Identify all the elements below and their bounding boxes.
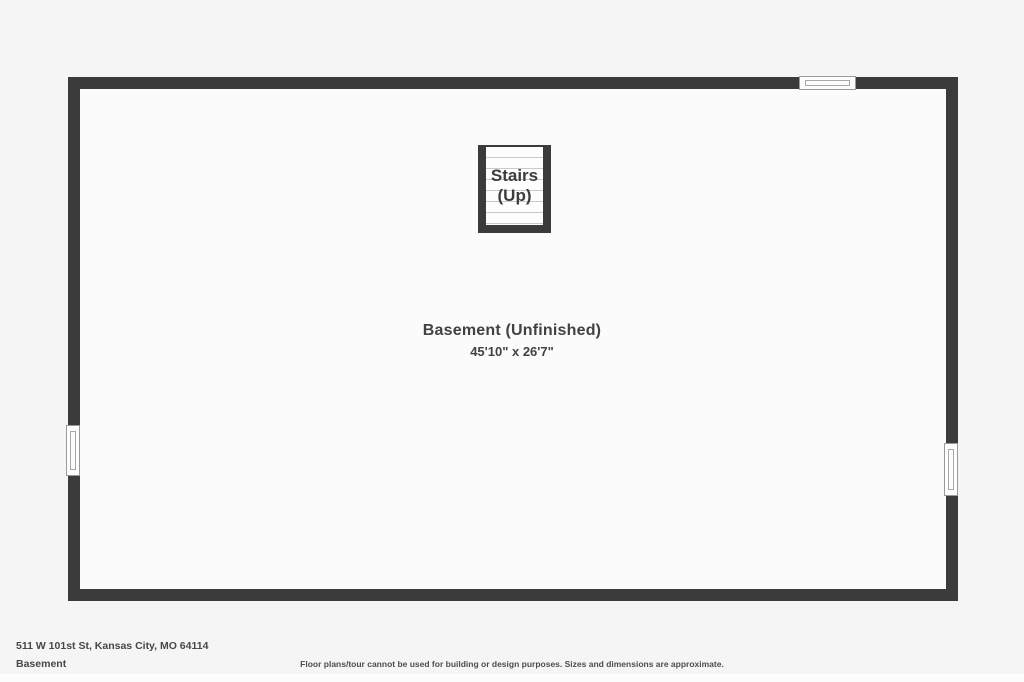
property-address: 511 W 101st St, Kansas City, MO 64114 (16, 640, 208, 652)
staircase-symbol: Stairs (Up) (478, 145, 551, 233)
window-top-icon (799, 76, 856, 90)
window-glass (70, 431, 76, 470)
stairs-label-line2: (Up) (498, 186, 532, 206)
window-right-icon (944, 443, 958, 496)
room-name: Basement (Unfinished) (0, 322, 1024, 340)
window-glass (948, 449, 954, 490)
window-glass (805, 80, 850, 86)
room-label: Basement (Unfinished) 45'10" x 26'7" (0, 322, 1024, 359)
room-dimensions: 45'10" x 26'7" (0, 344, 1024, 359)
stairs-label: Stairs (Up) (486, 147, 543, 225)
window-left-icon (66, 425, 80, 476)
bottom-strip (0, 674, 1024, 682)
stairs-label-line1: Stairs (491, 166, 538, 186)
disclaimer-text: Floor plans/tour cannot be used for buil… (0, 659, 1024, 669)
